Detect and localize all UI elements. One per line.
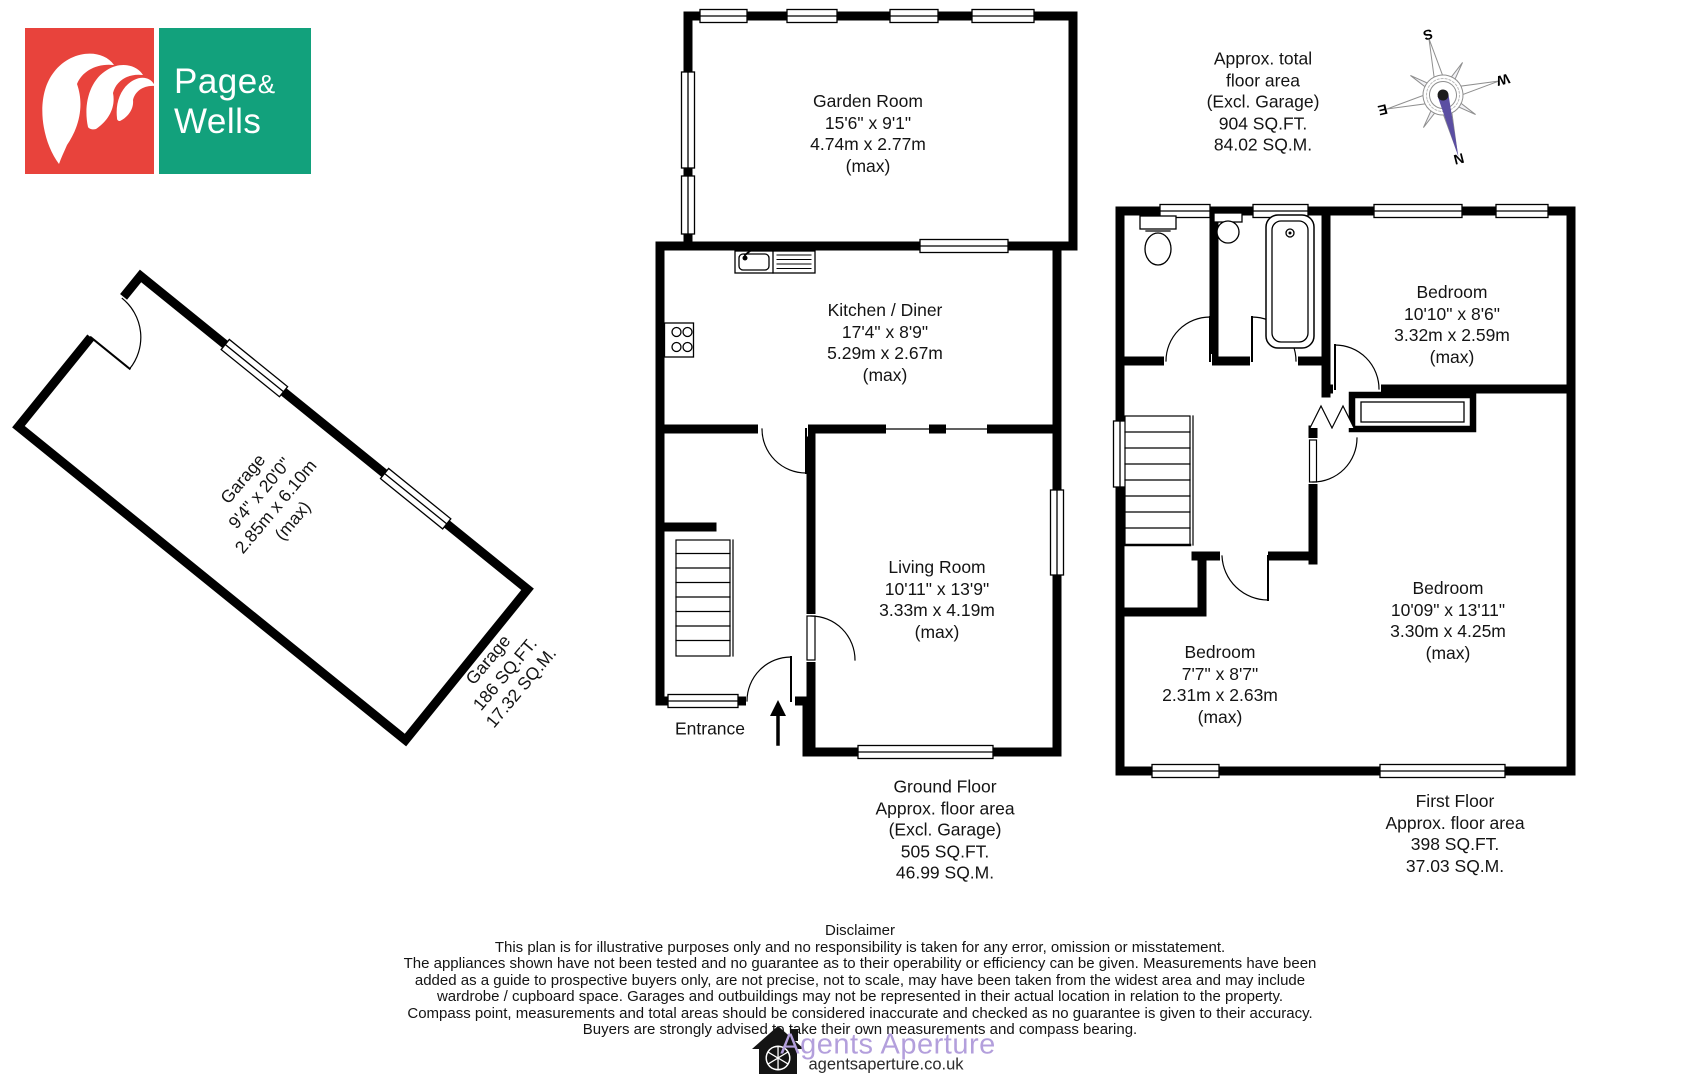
bedroom3-label: Bedroom 7'7" x 8'7" 2.31m x 2.63m (max) — [1162, 642, 1278, 728]
kitchen-door — [758, 422, 808, 474]
bedroom2-label: Bedroom 10'09" x 13'11" 3.30m x 4.25m (m… — [1390, 578, 1506, 664]
living-room-label: Living Room 10'11" x 13'9" 3.33m x 4.19m… — [879, 557, 995, 643]
ground-floor-area-label: Ground Floor Approx. floor area (Excl. G… — [875, 776, 1014, 884]
agents-aperture-url: agentsaperture.co.uk — [808, 1056, 963, 1075]
stairs-ground — [676, 540, 733, 656]
page-wells-logo-text: Page& Wells — [159, 28, 311, 174]
compass-e-label: E — [1376, 101, 1389, 119]
bathtub-icon — [1266, 215, 1314, 348]
compass-rose: N S E W — [1361, 10, 1527, 182]
compass-w-label: W — [1494, 71, 1511, 90]
compass-s-label: S — [1422, 26, 1435, 44]
hob-icon — [665, 323, 694, 357]
sink-icon — [735, 251, 815, 273]
disclaimer: Disclaimer This plan is for illustrative… — [404, 923, 1317, 1039]
total-area-label: Approx. total floor area (Excl. Garage) … — [1207, 48, 1320, 156]
floorplan-page: Page& Wells — [0, 0, 1707, 1080]
garden-room-label: Garden Room 15'6" x 9'1" 4.74m x 2.77m (… — [810, 91, 926, 177]
first-floor-area-label: First Floor Approx. floor area 398 SQ.FT… — [1385, 791, 1524, 877]
logo-word-wells: Wells — [174, 103, 311, 140]
entrance-label: Entrance — [675, 718, 745, 740]
bedroom1-label: Bedroom 10'10" x 8'6" 3.32m x 2.59m (max… — [1394, 282, 1510, 368]
page-wells-logo-mark — [25, 28, 154, 174]
logo-ampersand: & — [258, 69, 276, 99]
cased-opening — [886, 421, 987, 437]
living-room-door — [804, 614, 856, 662]
swirl-icon — [25, 28, 154, 174]
stairs-first — [1125, 416, 1193, 545]
logo-word-page: Page& — [174, 63, 311, 103]
compass-n-label: N — [1452, 150, 1466, 168]
kitchen-label: Kitchen / Diner 17'4" x 8'9" 5.29m x 2.6… — [827, 300, 943, 386]
disclaimer-title: Disclaimer — [404, 923, 1317, 940]
entrance-door — [746, 657, 795, 708]
